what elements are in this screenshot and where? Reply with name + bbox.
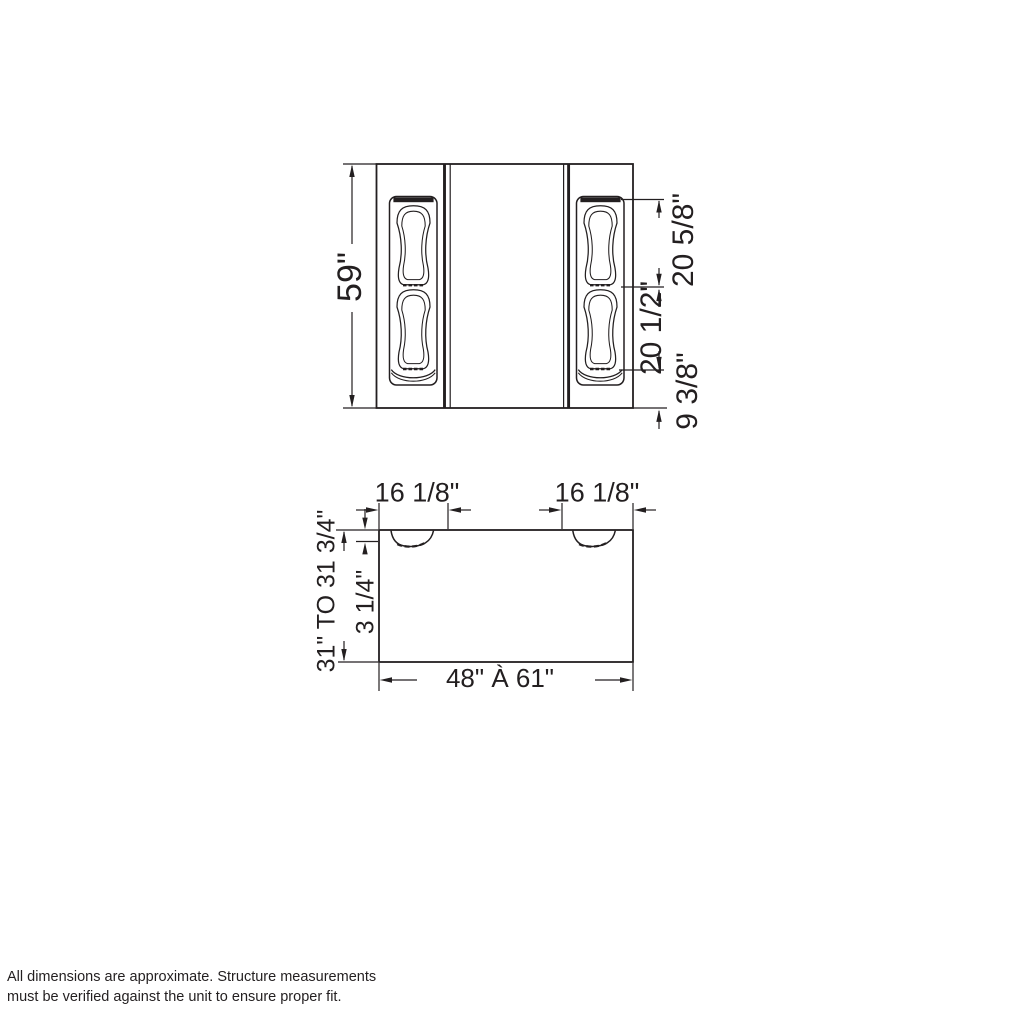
disclaimer-line-1: All dimensions are approximate. Structur… bbox=[7, 968, 376, 988]
top-view-plan bbox=[343, 164, 667, 429]
dim-bottom-offset-label: 9 3/8" bbox=[673, 352, 703, 429]
tray-bottom-band-inner bbox=[391, 373, 435, 381]
upper-cushion-inner bbox=[402, 211, 425, 279]
dim-recess-depth-label: 3 1/4" bbox=[354, 570, 379, 634]
disclaimer-line-2: must be verified against the unit to ens… bbox=[7, 988, 376, 1008]
lower-cushion-inner bbox=[402, 295, 425, 363]
dim-upper-seat-label: 20 5/8" bbox=[669, 193, 699, 287]
upper-cushion-outer bbox=[397, 206, 430, 285]
seat-tray-right bbox=[577, 197, 625, 386]
lower-cushion-outer bbox=[397, 290, 430, 369]
dim-recess-depth-lines bbox=[356, 509, 378, 554]
dim-left-inset-label: 16 1/8" bbox=[375, 480, 460, 507]
disclaimer: All dimensions are approximate. Structur… bbox=[7, 968, 376, 1007]
dim-overall-depth-label: 59" bbox=[333, 252, 367, 302]
tray-bottom-band-outer bbox=[391, 370, 435, 378]
seat-tray bbox=[390, 197, 438, 386]
dim-right-inset-label: 16 1/8" bbox=[555, 480, 640, 507]
front-view-outline bbox=[379, 530, 633, 662]
dimension-diagram: 59" 20 5/8" 20 1/2" 9 3/8" 16 1/8" 16 1/… bbox=[0, 0, 1024, 1015]
tray-top-bar bbox=[393, 197, 433, 202]
diagram-linework bbox=[0, 0, 1024, 1015]
dim-height-range-label: 31" TO 31 3/4" bbox=[315, 510, 340, 673]
dim-lower-seat-label: 20 1/2" bbox=[637, 281, 667, 375]
dim-width-range-label: 48" À 61" bbox=[446, 665, 554, 691]
